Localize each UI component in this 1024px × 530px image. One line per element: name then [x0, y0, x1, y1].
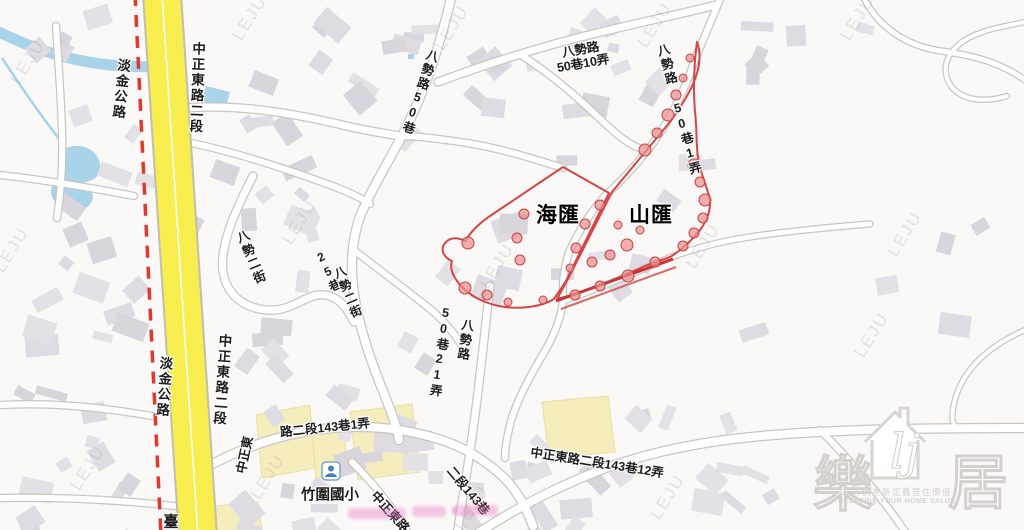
building-footprint	[92, 331, 113, 343]
red-building-mark	[580, 219, 590, 229]
building-footprint	[305, 227, 319, 243]
school-icon	[322, 462, 340, 480]
building-footprint	[122, 276, 151, 304]
school-label: 竹圍國小	[301, 488, 359, 505]
logo-char-ju: 居	[948, 435, 1008, 522]
red-building-mark	[689, 228, 699, 238]
red-building-mark	[459, 282, 471, 294]
building-footprint	[746, 64, 760, 85]
red-building-mark	[587, 257, 597, 267]
red-building-mark	[652, 128, 662, 138]
red-building-mark	[650, 257, 660, 267]
red-building-mark	[595, 200, 605, 210]
building-footprint	[970, 217, 990, 236]
logo-slogan-en: REDEFINE YOUR HOME VALUE	[832, 498, 962, 505]
red-building-mark	[519, 209, 529, 219]
building-footprint	[741, 21, 774, 32]
red-building-mark	[482, 290, 492, 300]
red-building-mark	[566, 264, 574, 272]
road-label-zhongzheng-top: 中正東路二段	[187, 41, 206, 134]
logo-char-le: 樂	[813, 437, 873, 524]
building-footprint	[210, 159, 241, 186]
building-footprint	[308, 50, 333, 75]
south-boundary-2	[561, 267, 676, 309]
red-building-mark	[605, 250, 615, 260]
building-footprint	[83, 4, 113, 31]
building-footprint	[314, 7, 352, 44]
building-footprint	[31, 287, 64, 313]
building-footprint	[294, 187, 310, 203]
building-footprint	[429, 471, 444, 484]
building-footprint	[397, 331, 419, 354]
building-footprint	[255, 185, 275, 204]
building-footprint	[252, 115, 273, 127]
red-building-mark	[570, 290, 580, 300]
pink-watermark-smudge	[452, 505, 498, 516]
building-footprint	[291, 517, 317, 530]
building-footprint	[62, 221, 88, 247]
building-footprint	[481, 97, 506, 118]
red-building-mark	[698, 213, 708, 223]
red-building-mark	[614, 221, 622, 229]
building-footprint	[295, 270, 311, 294]
red-building-mark	[512, 233, 522, 243]
building-footprint	[741, 466, 769, 485]
red-building-mark	[595, 281, 605, 291]
red-building-mark	[686, 54, 694, 62]
pink-watermark-smudge	[412, 506, 446, 517]
building-footprint	[68, 104, 93, 127]
building-footprint	[97, 161, 133, 187]
red-building-mark	[699, 194, 711, 206]
red-building-mark	[639, 144, 651, 156]
community-label-shanhui[interactable]: 山匯	[629, 204, 673, 228]
building-footprint	[280, 483, 295, 499]
building-footprint	[248, 70, 279, 96]
building-footprint	[559, 498, 592, 520]
building-footprint	[241, 208, 258, 232]
red-building-mark	[462, 237, 474, 249]
red-building-mark	[622, 270, 634, 282]
building-footprint	[936, 231, 956, 255]
building-footprint	[234, 348, 260, 375]
building-footprint	[311, 504, 338, 513]
building-footprint	[607, 43, 620, 54]
building-footprint	[786, 25, 807, 47]
red-building-mark	[515, 255, 525, 265]
building-footprint	[58, 255, 75, 271]
building-footprint	[691, 488, 726, 516]
red-building-mark	[695, 177, 705, 187]
building-footprint	[86, 236, 117, 264]
building-footprint	[55, 456, 72, 473]
building-footprint	[719, 412, 737, 435]
red-building-mark	[621, 239, 633, 251]
logo-slogan-zh: 幫人們重新定義居住價值	[832, 486, 962, 498]
building-footprint	[739, 322, 770, 343]
stream-tributary	[2, 58, 60, 140]
building-footprint	[938, 312, 972, 338]
map-canvas[interactable]: 中正東路二段 中正東路二段 淡金公路 淡金公路 臺 八勢路50巷10弄 八勢路5…	[0, 0, 1024, 530]
community-label-haihui[interactable]: 海匯	[536, 204, 580, 228]
building-footprint	[610, 59, 631, 76]
building-footprint	[381, 38, 407, 55]
red-building-mark	[539, 296, 547, 304]
building-footprint	[762, 488, 780, 505]
building-footprint	[411, 25, 440, 35]
logo-slogan: 幫人們重新定義居住價值 REDEFINE YOUR HOME VALUE	[832, 486, 962, 505]
pond	[408, 54, 414, 59]
road-label-tai-partial: 臺	[163, 513, 178, 530]
red-building-mark	[571, 243, 581, 253]
logo-monogram: lj	[890, 424, 920, 480]
building-footprint	[658, 405, 676, 431]
building-footprint	[856, 22, 875, 36]
building-footprint	[35, 385, 68, 402]
stream	[0, 30, 165, 67]
pink-watermark-smudge	[348, 508, 406, 519]
building-footprint	[403, 453, 428, 471]
building-footprint	[72, 272, 110, 304]
red-building-mark	[504, 298, 512, 306]
red-building-mark	[678, 241, 688, 251]
building-footprint	[875, 275, 899, 296]
building-footprint	[260, 317, 293, 336]
building-footprint	[317, 517, 342, 530]
red-building-mark	[679, 74, 687, 82]
